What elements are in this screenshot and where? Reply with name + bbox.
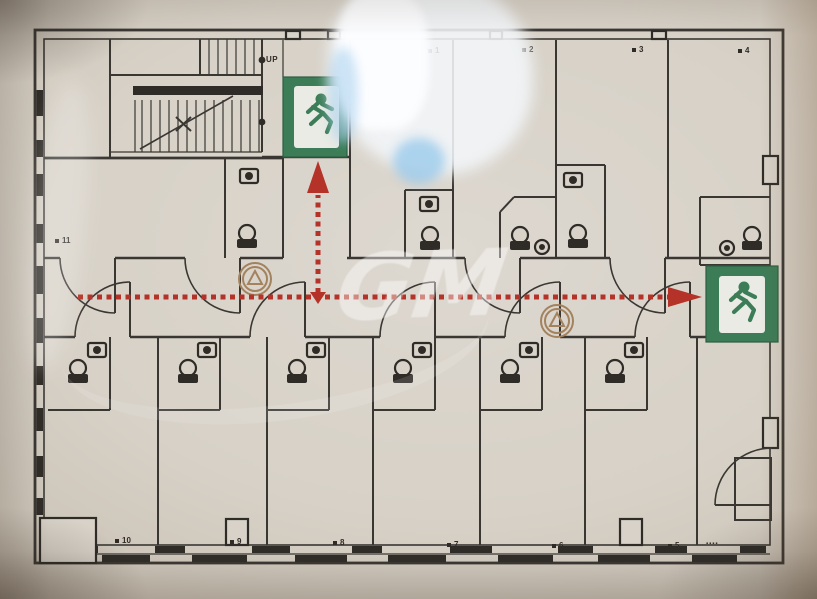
corner-closet (735, 458, 771, 520)
room-marker-icon (230, 540, 234, 544)
room-number: 3 (639, 46, 643, 54)
room-number: 7 (454, 541, 458, 549)
room-number: 5 (675, 542, 679, 550)
bottom-fixtures (68, 343, 643, 383)
room-marker-icon (738, 49, 742, 53)
stair-handrail (133, 86, 263, 95)
room-marker-icon (632, 48, 636, 52)
room-marker-icon (115, 539, 119, 543)
bathroom-fixtures (68, 169, 762, 383)
room-label-4: 4 (738, 47, 749, 55)
room-label-9: 9 (230, 538, 241, 546)
bottom-left-box (40, 518, 96, 563)
room-number: 4 (745, 47, 749, 55)
room-marker-icon (668, 544, 672, 548)
route-arrow-right (668, 287, 702, 307)
room-label-8: 8 (333, 539, 344, 547)
room-number: 10 (122, 537, 131, 545)
room-number: 6 (559, 542, 563, 550)
room-label-3: 3 (632, 46, 643, 54)
route-arrow-up (307, 161, 329, 193)
room-number: 8 (340, 539, 344, 547)
exit-sign-right (706, 266, 778, 342)
fire-extinguisher-icon (239, 263, 271, 295)
room-label-5: 5 (668, 542, 679, 550)
stairs-up-label: UP (266, 55, 278, 64)
room-label-7: 7 (447, 541, 458, 549)
room-marker-icon (447, 543, 451, 547)
small-box (620, 519, 642, 545)
illegible-corner-text: ▪▪▪▪ (706, 541, 719, 547)
room-marker-icon (333, 541, 337, 545)
photo-smudge-blue (393, 138, 445, 184)
room-marker-icon (552, 544, 556, 548)
fire-extinguisher-icon (541, 305, 573, 337)
room-label-6: 6 (552, 542, 563, 550)
upper-flight-treads (209, 39, 254, 75)
evacuation-plan-photo: 1 2 3 4 5 6 7 8 9 10 11 UP ▪▪▪▪ GM (0, 0, 817, 599)
bottom-bathroom-cubicles (48, 337, 647, 410)
lower-flight-treads (135, 100, 259, 152)
evacuation-route (78, 161, 702, 307)
route-junction (310, 292, 326, 304)
room-label-10: 10 (115, 537, 131, 545)
photo-smudge-blue (328, 48, 358, 143)
room-number: 9 (237, 538, 241, 546)
